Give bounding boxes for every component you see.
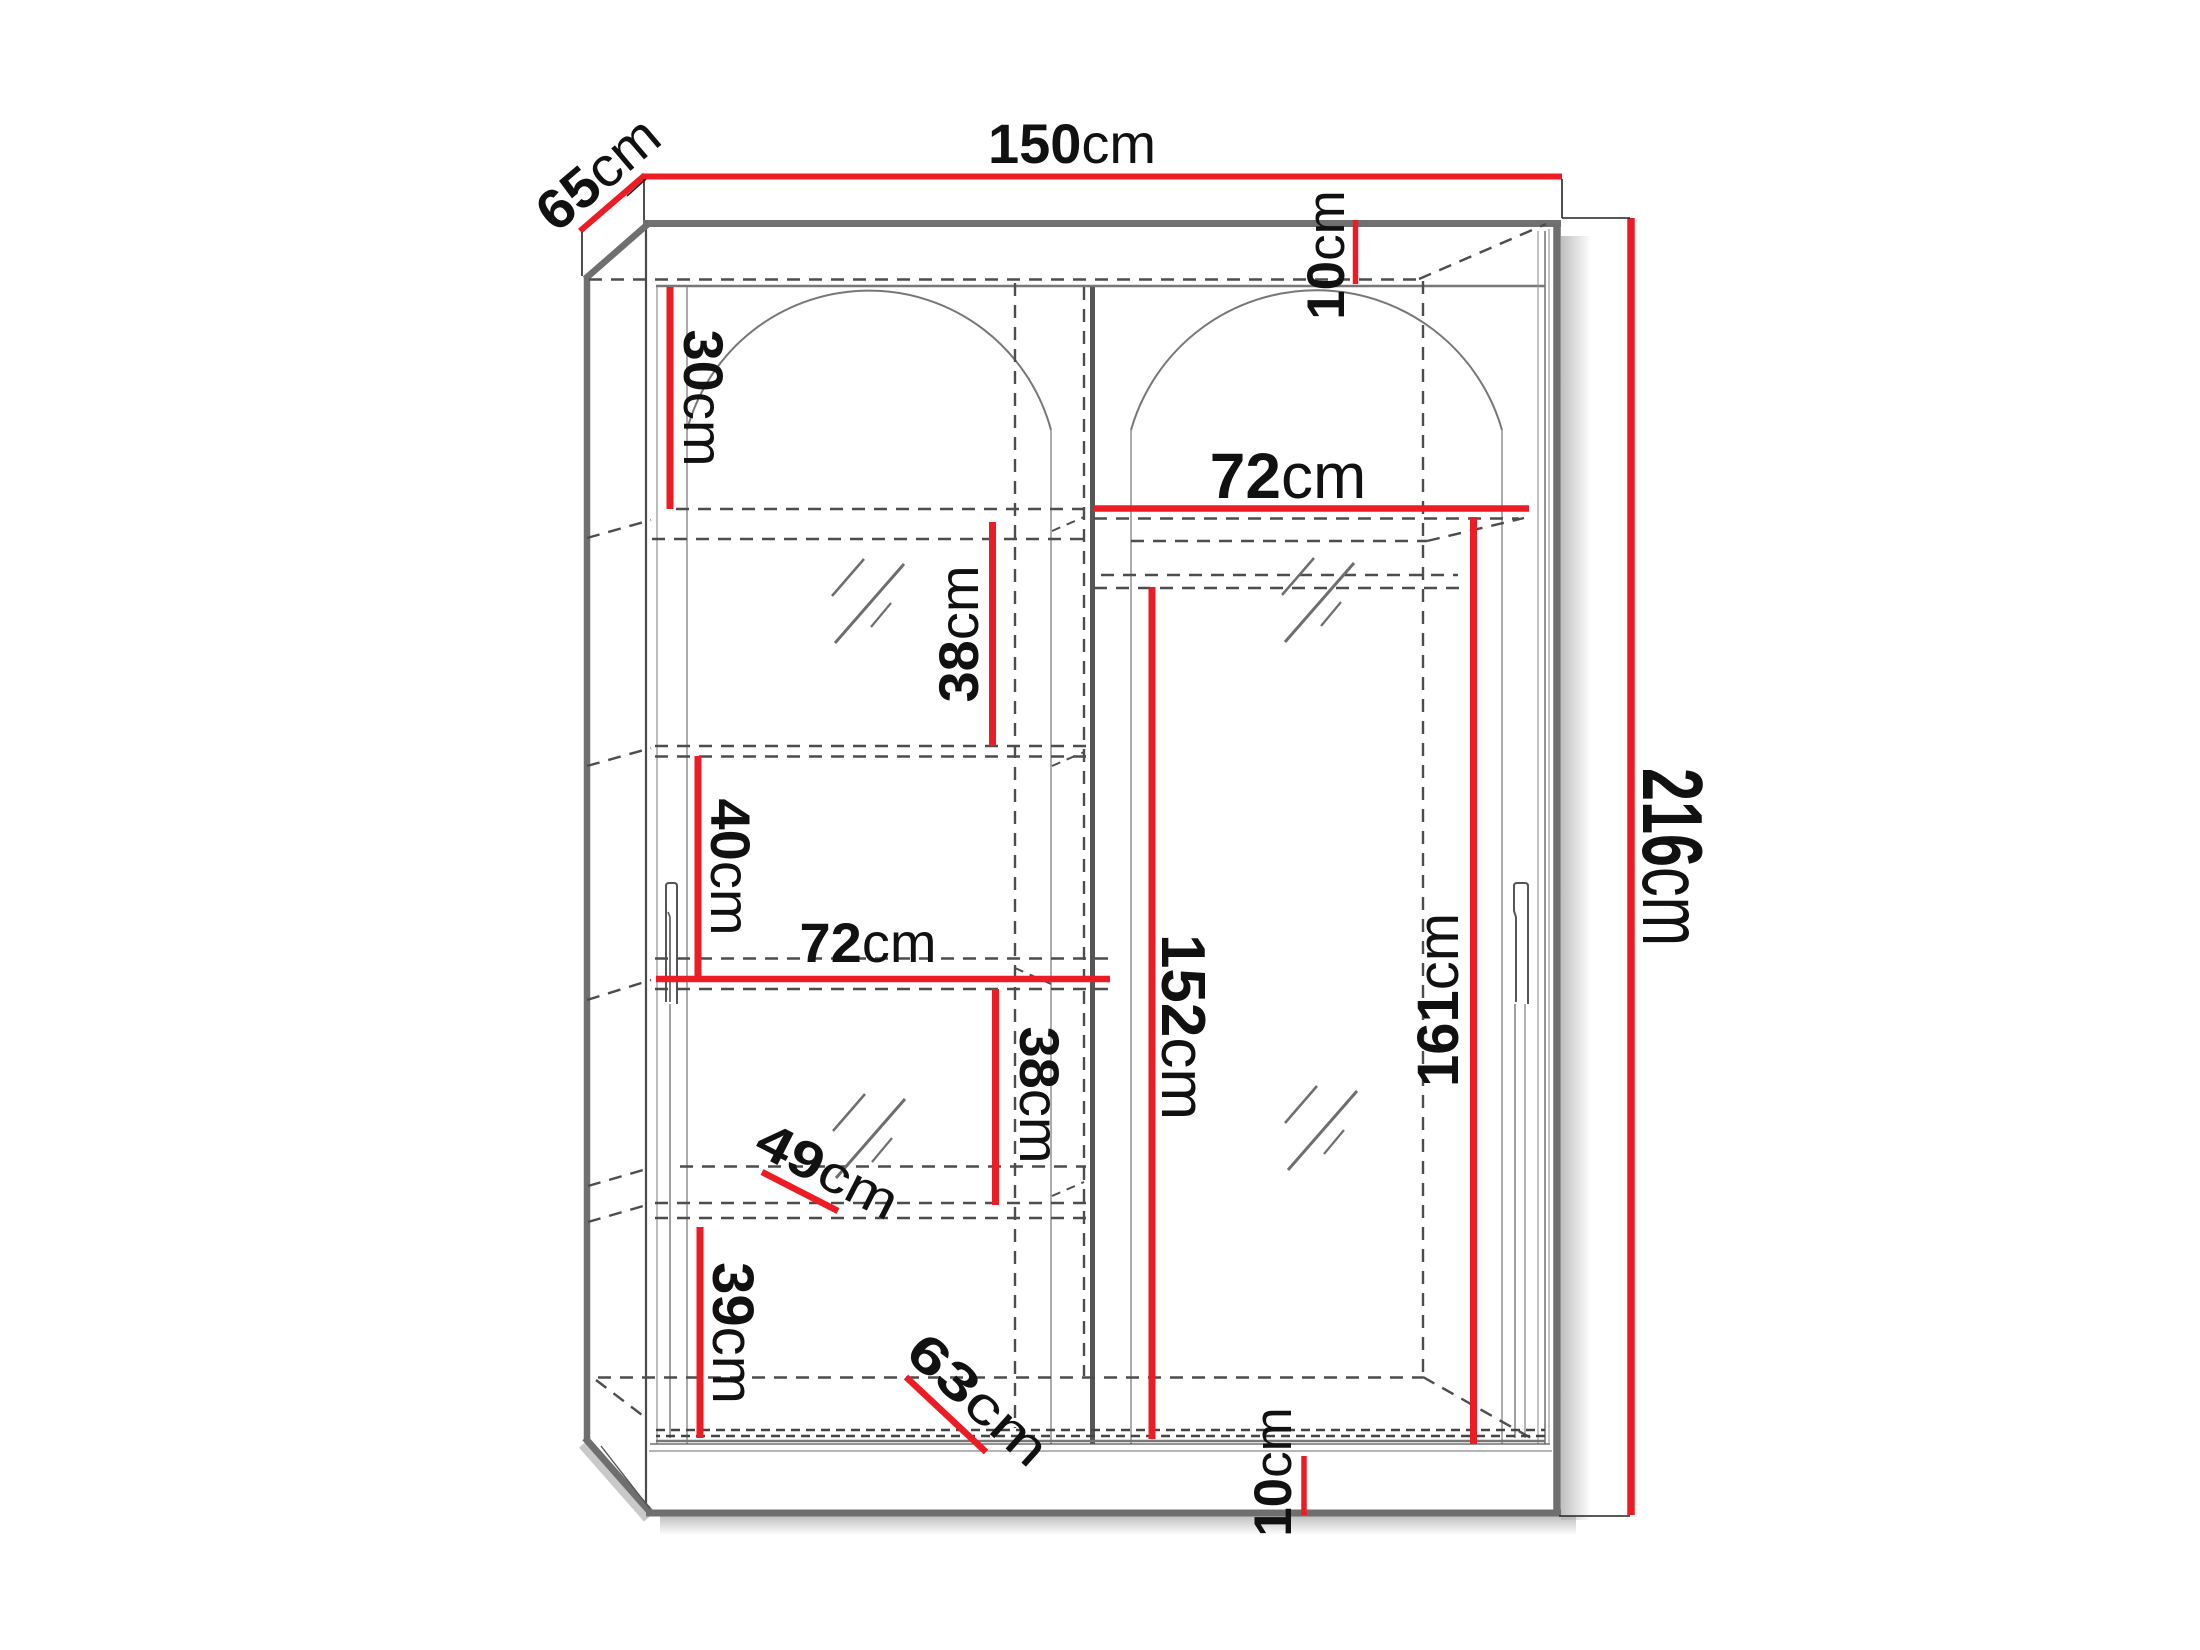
svg-text:38cm: 38cm [927, 566, 990, 703]
svg-text:216cm: 216cm [1624, 768, 1719, 946]
svg-text:161cm: 161cm [1406, 913, 1471, 1087]
svg-text:72cm: 72cm [1210, 440, 1367, 512]
svg-text:40cm: 40cm [699, 799, 762, 936]
svg-text:152cm: 152cm [1148, 934, 1217, 1120]
svg-text:38cm: 38cm [1008, 1027, 1071, 1164]
svg-text:10cm: 10cm [1297, 190, 1356, 320]
svg-text:10cm: 10cm [1244, 1407, 1303, 1537]
svg-text:72cm: 72cm [800, 911, 937, 974]
svg-text:39cm: 39cm [700, 1262, 765, 1404]
svg-text:150cm: 150cm [988, 112, 1156, 175]
svg-text:30cm: 30cm [672, 330, 735, 467]
